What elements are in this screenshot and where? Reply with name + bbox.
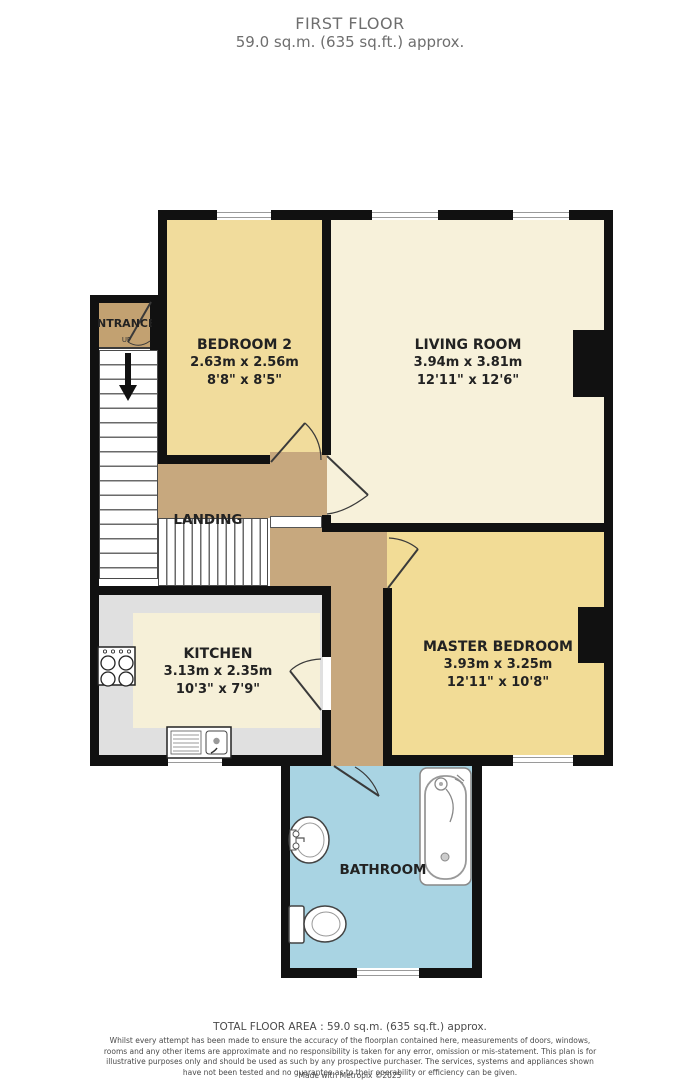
wall-bathroom-left xyxy=(281,766,290,978)
label-landing: LANDING xyxy=(158,511,258,529)
entrance-up: UP xyxy=(122,336,131,344)
master-metric: 3.93m x 3.25m xyxy=(387,656,609,674)
bedroom2-door-gap xyxy=(270,452,322,464)
label-entrance-up: UP xyxy=(99,336,154,344)
label-entrance: NTRANCE xyxy=(97,317,152,330)
living-imperial: 12'11" x 12'6" xyxy=(327,372,609,390)
window-bathroom xyxy=(357,968,419,978)
entrance-stair-edge xyxy=(99,347,150,349)
label-living: LIVING ROOM 3.94m x 3.81m 12'11" x 12'6" xyxy=(327,336,609,390)
wall-left-outer xyxy=(90,295,99,766)
wall-kitchen-top xyxy=(90,586,331,595)
staircase-upper-flight xyxy=(99,350,158,579)
wall-bottom-seg2 xyxy=(222,755,331,766)
wall-landing-top xyxy=(158,455,270,464)
wall-bathroom-bottom-seg1 xyxy=(281,968,357,978)
wall-left-upper xyxy=(158,210,167,455)
living-metric: 3.94m x 3.81m xyxy=(327,354,609,372)
wall-bedroom2-living xyxy=(322,210,331,455)
made-with-text: Made with Metropix ©2025 xyxy=(0,1071,700,1080)
window-master xyxy=(513,755,573,766)
label-master: MASTER BEDROOM 3.93m x 3.25m 12'11" x 10… xyxy=(387,638,609,692)
bathroom-name: BATHROOM xyxy=(290,861,476,879)
bedroom2-imperial: 8'8" x 8'5" xyxy=(162,372,327,390)
master-imperial: 12'11" x 10'8" xyxy=(387,674,609,692)
kitchen-name: KITCHEN xyxy=(123,645,313,663)
wall-living-bottom xyxy=(322,523,613,532)
stairwell-edge xyxy=(270,516,322,528)
floorplan-page: FIRST FLOOR 59.0 sq.m. (635 sq.ft.) appr… xyxy=(0,0,700,1087)
wall-bottom-seg1 xyxy=(90,755,168,766)
page-subtitle: 59.0 sq.m. (635 sq.ft.) approx. xyxy=(0,33,700,51)
corridor-lower xyxy=(331,586,387,766)
kitchen-metric: 3.13m x 2.35m xyxy=(123,663,313,681)
corridor-upper xyxy=(270,528,387,586)
entrance-name: NTRANCE xyxy=(97,317,152,330)
label-bedroom2: BEDROOM 2 2.63m x 2.56m 8'8" x 8'5" xyxy=(162,336,327,390)
wall-bottom-seg4 xyxy=(573,755,613,766)
label-bathroom: BATHROOM xyxy=(290,861,476,879)
wall-kitchen-right-upper xyxy=(322,586,331,657)
master-name: MASTER BEDROOM xyxy=(387,638,609,656)
window-living-2 xyxy=(513,210,569,220)
bedroom2-name: BEDROOM 2 xyxy=(162,336,327,354)
wall-bathroom-bottom-seg2 xyxy=(419,968,482,978)
bedroom2-metric: 2.63m x 2.56m xyxy=(162,354,327,372)
kitchen-imperial: 10'3" x 7'9" xyxy=(123,681,313,699)
landing-name: LANDING xyxy=(158,511,258,529)
label-kitchen: KITCHEN 3.13m x 2.35m 10'3" x 7'9" xyxy=(123,645,313,699)
living-name: LIVING ROOM xyxy=(327,336,609,354)
wall-bottom-seg3 xyxy=(383,755,513,766)
page-title: FIRST FLOOR xyxy=(0,14,700,33)
room-landing xyxy=(158,455,327,518)
window-kitchen xyxy=(168,755,222,766)
window-bedroom2 xyxy=(217,210,271,220)
total-floor-area: TOTAL FLOOR AREA : 59.0 sq.m. (635 sq.ft… xyxy=(0,1021,700,1033)
window-living-1 xyxy=(372,210,438,220)
